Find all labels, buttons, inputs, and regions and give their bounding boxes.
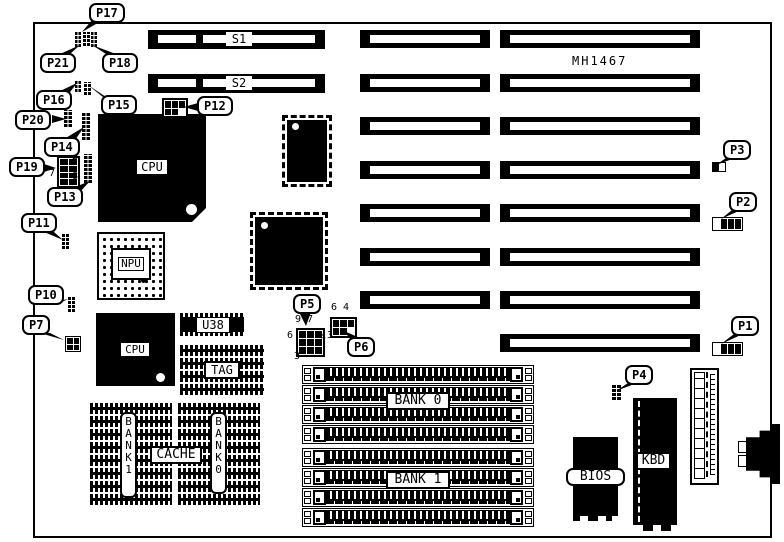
expansion-slot-long (500, 30, 700, 48)
p21-header (83, 32, 90, 46)
kbd-chip-pin (661, 525, 671, 531)
kbd-label: KBD (636, 452, 671, 470)
expansion-slot-short (360, 161, 490, 179)
cpu-chip: CPU (98, 114, 206, 222)
cache-label: CACHE (150, 446, 202, 464)
kbd-chip-pin (643, 525, 653, 531)
p16-header (75, 81, 81, 92)
simm-socket (302, 488, 534, 507)
simm-bank0-label: BANK 0 (386, 392, 450, 410)
cache-bank1-label: BANK 1 (120, 412, 137, 498)
p13-header (84, 154, 92, 183)
p10-jumper (68, 296, 75, 312)
expansion-slot-short (360, 248, 490, 266)
p19-pin7-number: 7 (49, 169, 55, 179)
expansion-slot-long (500, 204, 700, 222)
p18-header (91, 31, 97, 47)
qfp-chip-lower (250, 212, 328, 290)
p12-jumper (162, 98, 188, 118)
expansion-slot-long (500, 291, 700, 309)
callout-p21: P21 (40, 53, 76, 73)
p5-pin6-number: 6 (287, 331, 293, 341)
p19-pin8-number: 8 (72, 172, 78, 182)
motherboard-diagram: MH1467 S1 S2 CPU NPU CPU (0, 0, 784, 542)
expansion-slot-long (500, 74, 700, 92)
callout-p16: P16 (36, 90, 72, 110)
tag-ram-chip (180, 384, 264, 395)
p5-pin4-number: 4 (320, 333, 326, 343)
simm-socket (302, 365, 534, 384)
p3-jumper (712, 162, 726, 172)
p6-pin4-number: 4 (343, 303, 349, 313)
callout-p2: P2 (729, 192, 757, 212)
slot-s2: S2 (148, 74, 325, 93)
expansion-slot-short (360, 30, 490, 48)
p7-jumper (65, 336, 81, 352)
cpu2-chip: CPU (96, 313, 175, 386)
board-model-text: MH1467 (572, 54, 627, 68)
cache-bank0-label: BANK 0 (210, 412, 227, 494)
simm-socket (302, 448, 534, 467)
p1-jumper (712, 342, 743, 356)
expansion-slot-short (360, 74, 490, 92)
p17-header (75, 31, 81, 47)
p6-pin3-number: 3 (327, 331, 333, 341)
din-tab (738, 455, 747, 467)
p15-header (84, 82, 91, 95)
din-tab (738, 441, 747, 453)
callout-p6: P6 (347, 337, 375, 357)
expansion-slot-short (360, 291, 490, 309)
tag-ram-chip (180, 345, 264, 356)
callout-p13: P13 (47, 187, 83, 207)
expansion-slot-long (500, 161, 700, 179)
cache-ram-chip (178, 494, 260, 505)
callout-p12: P12 (197, 96, 233, 116)
expansion-slot-short (360, 204, 490, 222)
p11-jumper (62, 234, 69, 249)
power-connector (690, 368, 719, 485)
callout-p17: P17 (89, 3, 125, 23)
p14-header (82, 112, 90, 140)
expansion-slot-long (500, 334, 700, 352)
bios-label: BIOS (566, 468, 625, 486)
expansion-slot-long (500, 248, 700, 266)
expansion-slot-long (500, 117, 700, 135)
p4-jumper (612, 384, 621, 400)
slot-s2-label: S2 (226, 76, 252, 90)
expansion-slot-short (360, 117, 490, 135)
simm-bank1-label: BANK 1 (386, 471, 450, 489)
callout-p18: P18 (102, 53, 138, 73)
cpu-label: CPU (137, 160, 167, 174)
callout-p3: P3 (723, 140, 751, 160)
callout-p5: P5 (293, 294, 321, 314)
u38-label: U38 (196, 317, 230, 333)
cpu2-label: CPU (121, 343, 149, 356)
callout-p1: P1 (731, 316, 759, 336)
callout-p19: P19 (9, 157, 45, 177)
p5-pin7-number: 7 (307, 315, 313, 325)
p6-jumper (330, 317, 357, 338)
npu-label: NPU (118, 257, 144, 271)
callout-p11: P11 (21, 213, 57, 233)
p20-header (64, 110, 72, 127)
callout-p15: P15 (101, 95, 137, 115)
p2-jumper (712, 217, 743, 231)
callout-p20: P20 (15, 110, 51, 130)
slot-s1-label: S1 (226, 32, 252, 46)
tag-label: TAG (204, 361, 240, 379)
callout-p14: P14 (44, 137, 80, 157)
p5-pin3-number: 3 (294, 352, 300, 362)
npu-socket: NPU (97, 232, 165, 300)
simm-socket (302, 425, 534, 444)
simm-socket (302, 508, 534, 527)
slot-s1: S1 (148, 30, 325, 49)
callout-p7: P7 (22, 315, 50, 335)
callout-p4: P4 (625, 365, 653, 385)
callout-p10: P10 (28, 285, 64, 305)
p5-pin9-number: 9 (295, 315, 301, 325)
p6-pin6-number: 6 (331, 303, 337, 313)
qfp-chip-upper (282, 115, 332, 187)
